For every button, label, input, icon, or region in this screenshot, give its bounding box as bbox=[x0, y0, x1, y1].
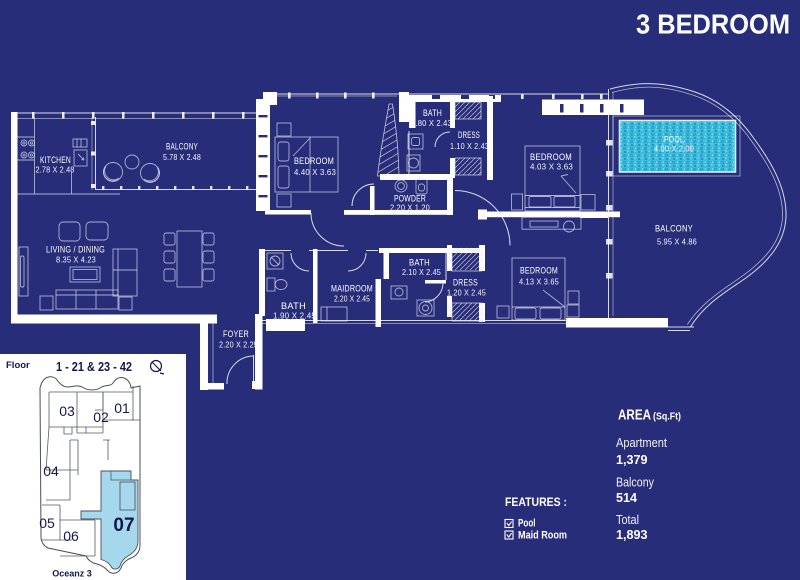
svg-text:AREA: AREA bbox=[618, 407, 651, 424]
svg-text:01: 01 bbox=[114, 400, 130, 416]
svg-text:BALCONY: BALCONY bbox=[655, 224, 693, 234]
svg-text:LIVING / DINING: LIVING / DINING bbox=[46, 245, 105, 255]
svg-text:BATH: BATH bbox=[281, 301, 306, 311]
svg-text:1.20 X 2.45: 1.20 X 2.45 bbox=[447, 288, 486, 298]
svg-text:KITCHEN: KITCHEN bbox=[40, 155, 71, 165]
svg-text:4.00 X 2.00: 4.00 X 2.00 bbox=[654, 144, 694, 154]
svg-text:1.10 X 2.43: 1.10 X 2.43 bbox=[450, 141, 489, 151]
svg-text:06: 06 bbox=[63, 528, 79, 544]
svg-text:2.20 X 2.25: 2.20 X 2.25 bbox=[219, 340, 258, 350]
svg-text:04: 04 bbox=[43, 463, 59, 479]
svg-text:Apartment: Apartment bbox=[616, 436, 667, 450]
svg-text:DRESS: DRESS bbox=[453, 278, 478, 288]
svg-text:1,893: 1,893 bbox=[616, 527, 648, 542]
svg-text:3 BEDROOM: 3 BEDROOM bbox=[636, 9, 790, 40]
svg-text:BEDROOM: BEDROOM bbox=[520, 266, 558, 276]
svg-text:BEDROOM: BEDROOM bbox=[294, 156, 334, 166]
svg-text:Maid Room: Maid Room bbox=[518, 530, 567, 542]
svg-text:8.35 X 4.23: 8.35 X 4.23 bbox=[56, 255, 96, 265]
svg-text:2.10 X 2.45: 2.10 X 2.45 bbox=[402, 267, 441, 277]
svg-text:BATH: BATH bbox=[409, 258, 430, 268]
svg-text:Total: Total bbox=[616, 513, 639, 527]
svg-text:Oceanz 3: Oceanz 3 bbox=[52, 569, 92, 579]
svg-text:Pool: Pool bbox=[518, 518, 536, 530]
svg-text:FOYER: FOYER bbox=[223, 329, 249, 339]
svg-text:2.20 X 2.45: 2.20 X 2.45 bbox=[334, 294, 370, 304]
svg-text:BALCONY: BALCONY bbox=[166, 142, 198, 152]
svg-text:2.78 X 2.48: 2.78 X 2.48 bbox=[36, 165, 75, 175]
svg-text:4.03 X 3.63: 4.03 X 3.63 bbox=[530, 162, 573, 172]
svg-text:1,379: 1,379 bbox=[616, 452, 648, 467]
svg-text:02: 02 bbox=[93, 409, 109, 425]
svg-text:2.20 X 1.20: 2.20 X 1.20 bbox=[390, 203, 430, 213]
svg-text:(Sq.Ft): (Sq.Ft) bbox=[653, 411, 681, 423]
svg-text:514: 514 bbox=[616, 490, 638, 505]
svg-text:Floor: Floor bbox=[6, 360, 30, 371]
svg-text:MAIDROOM: MAIDROOM bbox=[331, 284, 373, 294]
svg-text:07: 07 bbox=[113, 515, 134, 536]
svg-text:1.90 X 2.45: 1.90 X 2.45 bbox=[273, 311, 316, 321]
svg-text:03: 03 bbox=[59, 403, 75, 419]
svg-text:FEATURES :: FEATURES : bbox=[505, 497, 567, 509]
svg-text:5.95 X 4.86: 5.95 X 4.86 bbox=[657, 237, 697, 247]
svg-text:05: 05 bbox=[39, 515, 55, 531]
svg-text:BATH: BATH bbox=[423, 108, 442, 118]
svg-text:4.40 X 3.63: 4.40 X 3.63 bbox=[294, 167, 336, 177]
svg-text:5.78 X 2.48: 5.78 X 2.48 bbox=[163, 152, 201, 162]
svg-text:4.13 X 3.65: 4.13 X 3.65 bbox=[519, 277, 559, 287]
svg-text:1 - 21 & 23 - 42: 1 - 21 & 23 - 42 bbox=[56, 359, 132, 374]
svg-text:1.80 X 2.43: 1.80 X 2.43 bbox=[411, 118, 452, 128]
svg-text:DRESS: DRESS bbox=[458, 130, 480, 140]
svg-text:Balcony: Balcony bbox=[616, 476, 655, 490]
svg-text:BEDROOM: BEDROOM bbox=[530, 152, 572, 162]
